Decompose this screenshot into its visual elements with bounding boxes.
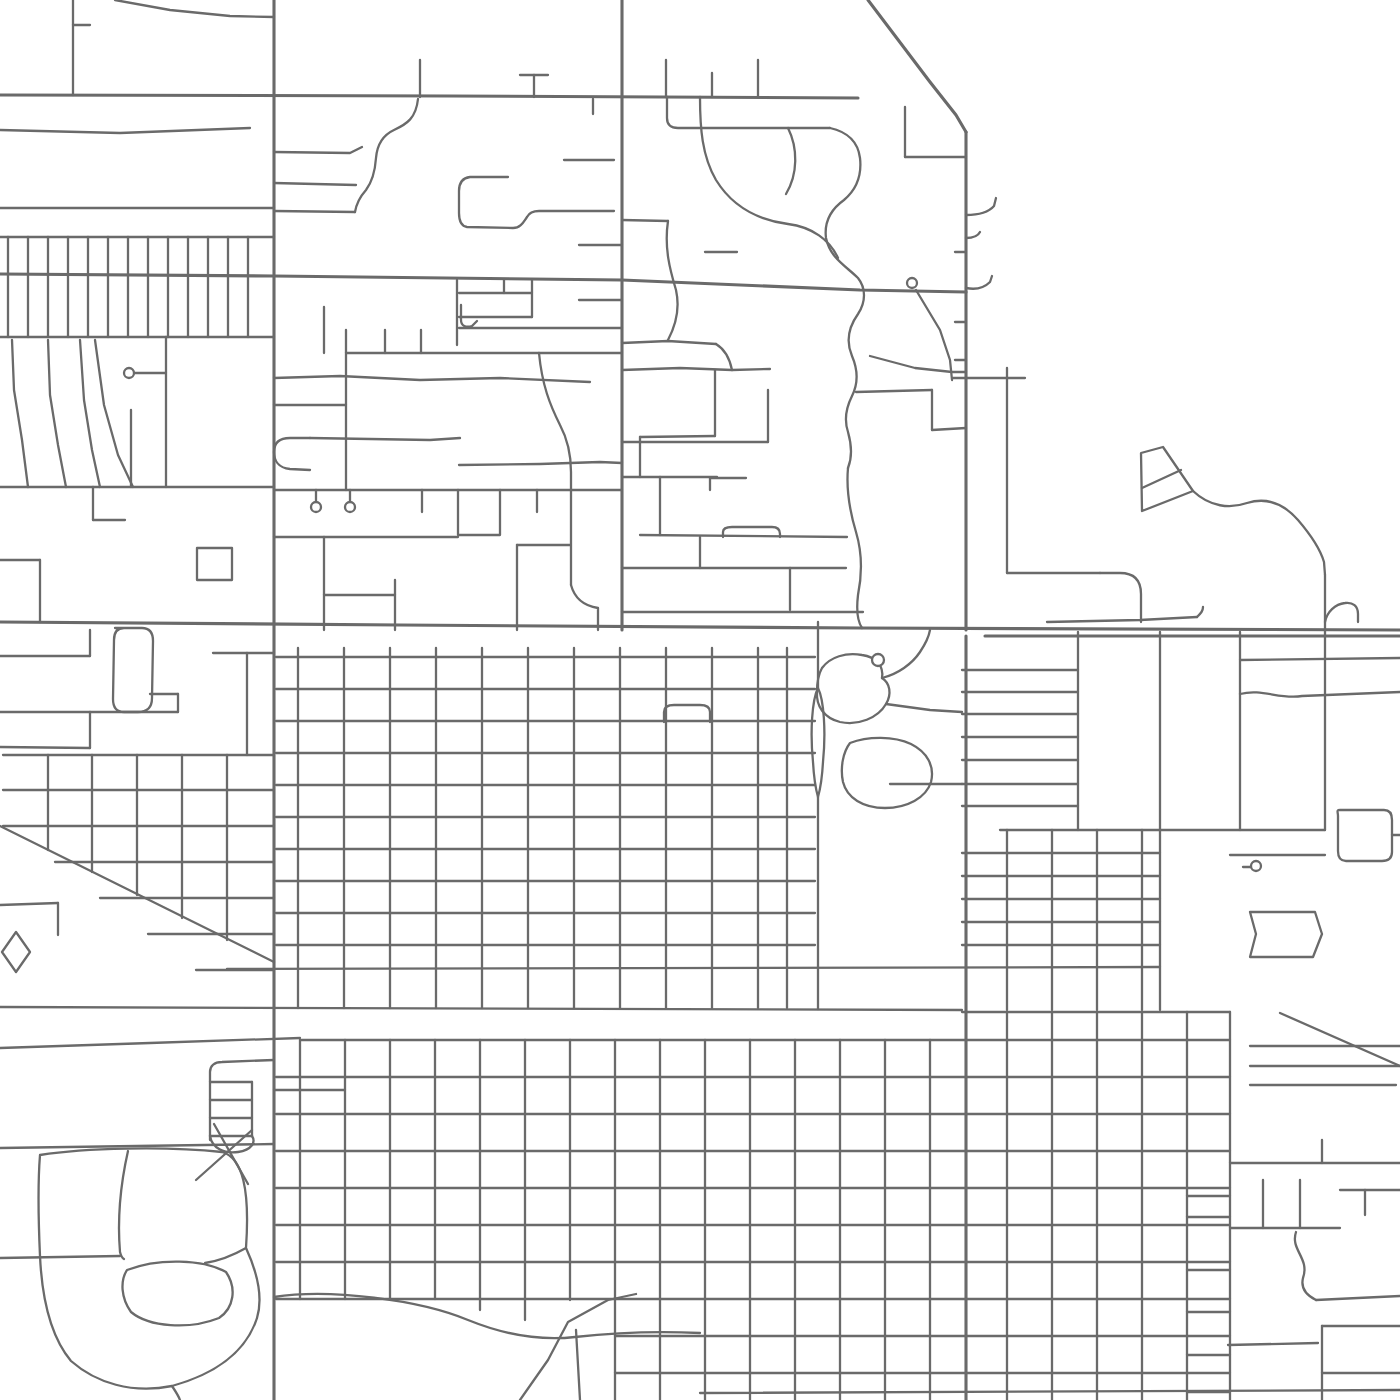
road <box>1240 658 1400 660</box>
road <box>1250 912 1322 957</box>
road <box>196 1130 252 1180</box>
road-curve <box>1325 603 1358 622</box>
road-curve <box>966 276 992 289</box>
road-curve <box>122 1262 232 1326</box>
road-curve <box>826 128 864 468</box>
road-curve <box>119 1151 128 1259</box>
road <box>1316 1296 1400 1300</box>
road <box>310 438 460 440</box>
road <box>916 290 952 380</box>
road <box>48 340 66 487</box>
road-curve <box>274 1294 700 1338</box>
road <box>2 932 30 972</box>
road-curve <box>966 232 980 238</box>
road-curve <box>355 99 418 212</box>
road-curve <box>667 97 830 128</box>
road <box>0 1038 300 1048</box>
cul-de-sac-circle <box>1251 861 1261 871</box>
road <box>115 0 274 17</box>
major-roads <box>0 0 1400 1400</box>
road <box>700 1390 1400 1393</box>
road <box>622 220 668 221</box>
road <box>274 183 356 185</box>
road <box>0 95 858 98</box>
road <box>886 704 962 712</box>
road <box>622 368 770 370</box>
road <box>197 548 232 580</box>
road-curve <box>1100 573 1141 622</box>
road <box>0 747 90 748</box>
road-curve <box>571 585 598 630</box>
road <box>0 274 966 292</box>
road <box>622 341 716 344</box>
road <box>1047 617 1197 622</box>
road-curve <box>700 97 838 258</box>
road <box>868 0 966 132</box>
road <box>1142 470 1181 488</box>
road <box>227 967 1160 969</box>
road <box>0 622 1400 630</box>
road-curve <box>1240 692 1400 697</box>
road-curve <box>1338 810 1393 861</box>
road <box>274 147 362 153</box>
road <box>95 340 133 487</box>
road <box>274 211 355 212</box>
road-curve <box>205 1248 246 1263</box>
road <box>640 436 715 437</box>
road-curve <box>882 630 930 678</box>
road-curve <box>172 1386 180 1400</box>
minor-roads <box>0 0 1400 1400</box>
cul-de-sac-circle <box>311 502 321 512</box>
road-curve <box>716 344 732 370</box>
road <box>1228 1343 1318 1345</box>
road-curve <box>966 198 996 215</box>
road-curve <box>1193 491 1325 575</box>
road-curve <box>1295 1232 1316 1300</box>
road-curve <box>664 705 710 722</box>
cul-de-sac-circle <box>907 278 917 288</box>
road <box>12 340 28 487</box>
cul-de-sac-circle <box>872 654 884 666</box>
road <box>1141 447 1193 511</box>
road <box>1280 1013 1400 1066</box>
road-curve <box>39 1148 260 1388</box>
road-curve <box>1197 607 1203 617</box>
road <box>0 1256 120 1258</box>
road <box>459 462 622 465</box>
road-curve <box>459 177 614 228</box>
street-map-viewport <box>0 0 1400 1400</box>
road-curve <box>539 353 571 490</box>
road <box>0 903 58 905</box>
road <box>0 128 250 133</box>
road-curve <box>786 128 795 194</box>
road-curve <box>113 628 153 712</box>
road-curve <box>812 622 818 1009</box>
cul-de-sac-circle <box>345 502 355 512</box>
road <box>458 490 500 535</box>
road-curve <box>274 438 310 470</box>
road-curve <box>847 468 862 628</box>
cul-de-sac-circle <box>124 368 134 378</box>
road <box>932 428 966 430</box>
road <box>576 1330 580 1400</box>
road <box>856 390 932 392</box>
road-curve <box>842 738 932 808</box>
road <box>640 535 847 537</box>
street-map-canvas <box>0 0 1400 1400</box>
